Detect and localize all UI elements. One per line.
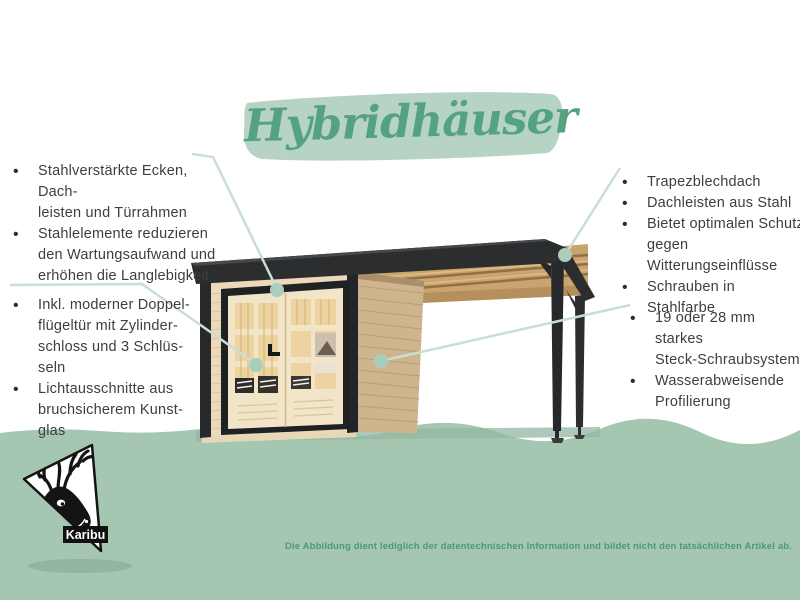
feature-item: Stahlverstärkte Ecken, Dach- leisten und…	[11, 161, 226, 224]
callout-line-roof	[565, 168, 620, 255]
callout-dot	[558, 248, 572, 262]
feature-item: Stahlelemente reduzieren den Wartungsauf…	[11, 224, 226, 287]
feature-item: Trapezblechdach	[620, 172, 800, 193]
feature-list-right-bottom: 19 oder 28 mm starkes Steck-Schraubsyste…	[628, 308, 800, 413]
feature-list-left-bottom: Inkl. moderner Doppel- flügeltür mit Zyl…	[11, 295, 226, 442]
callout-dot	[249, 358, 263, 372]
double-door	[221, 280, 350, 435]
feature-item: Lichtausschnitte aus bruchsicherem Kunst…	[11, 379, 226, 442]
ground-band	[0, 419, 800, 600]
feature-item: Bietet optimalen Schutz gegen Witterungs…	[620, 214, 800, 277]
callout-dot	[374, 354, 388, 368]
feature-list-right-top: Trapezblechdach Dachleisten aus Stahl Bi…	[620, 172, 800, 319]
feature-item: 19 oder 28 mm starkes Steck-Schraubsyste…	[628, 308, 800, 371]
feature-list-left-top: Stahlverstärkte Ecken, Dach- leisten und…	[11, 161, 226, 287]
callout-dot	[270, 283, 284, 297]
feature-item: Wasserabweisende Profilierung	[628, 371, 800, 413]
logo-shadow	[28, 559, 132, 573]
canopy-rear-post	[566, 290, 585, 439]
logo-label: Karibu	[66, 528, 106, 542]
house-illustration	[191, 239, 595, 443]
feature-item: Dachleisten aus Stahl	[620, 193, 800, 214]
disclaimer-text: Die Abbildung dient lediglich der datent…	[232, 541, 792, 552]
feature-item: Inkl. moderner Doppel- flügeltür mit Zyl…	[11, 295, 226, 379]
infographic-canvas: Karibu Hybridhäuser Stahlverstärkte Ecke…	[0, 0, 800, 600]
page-title: Hybridhäuser	[243, 94, 562, 150]
